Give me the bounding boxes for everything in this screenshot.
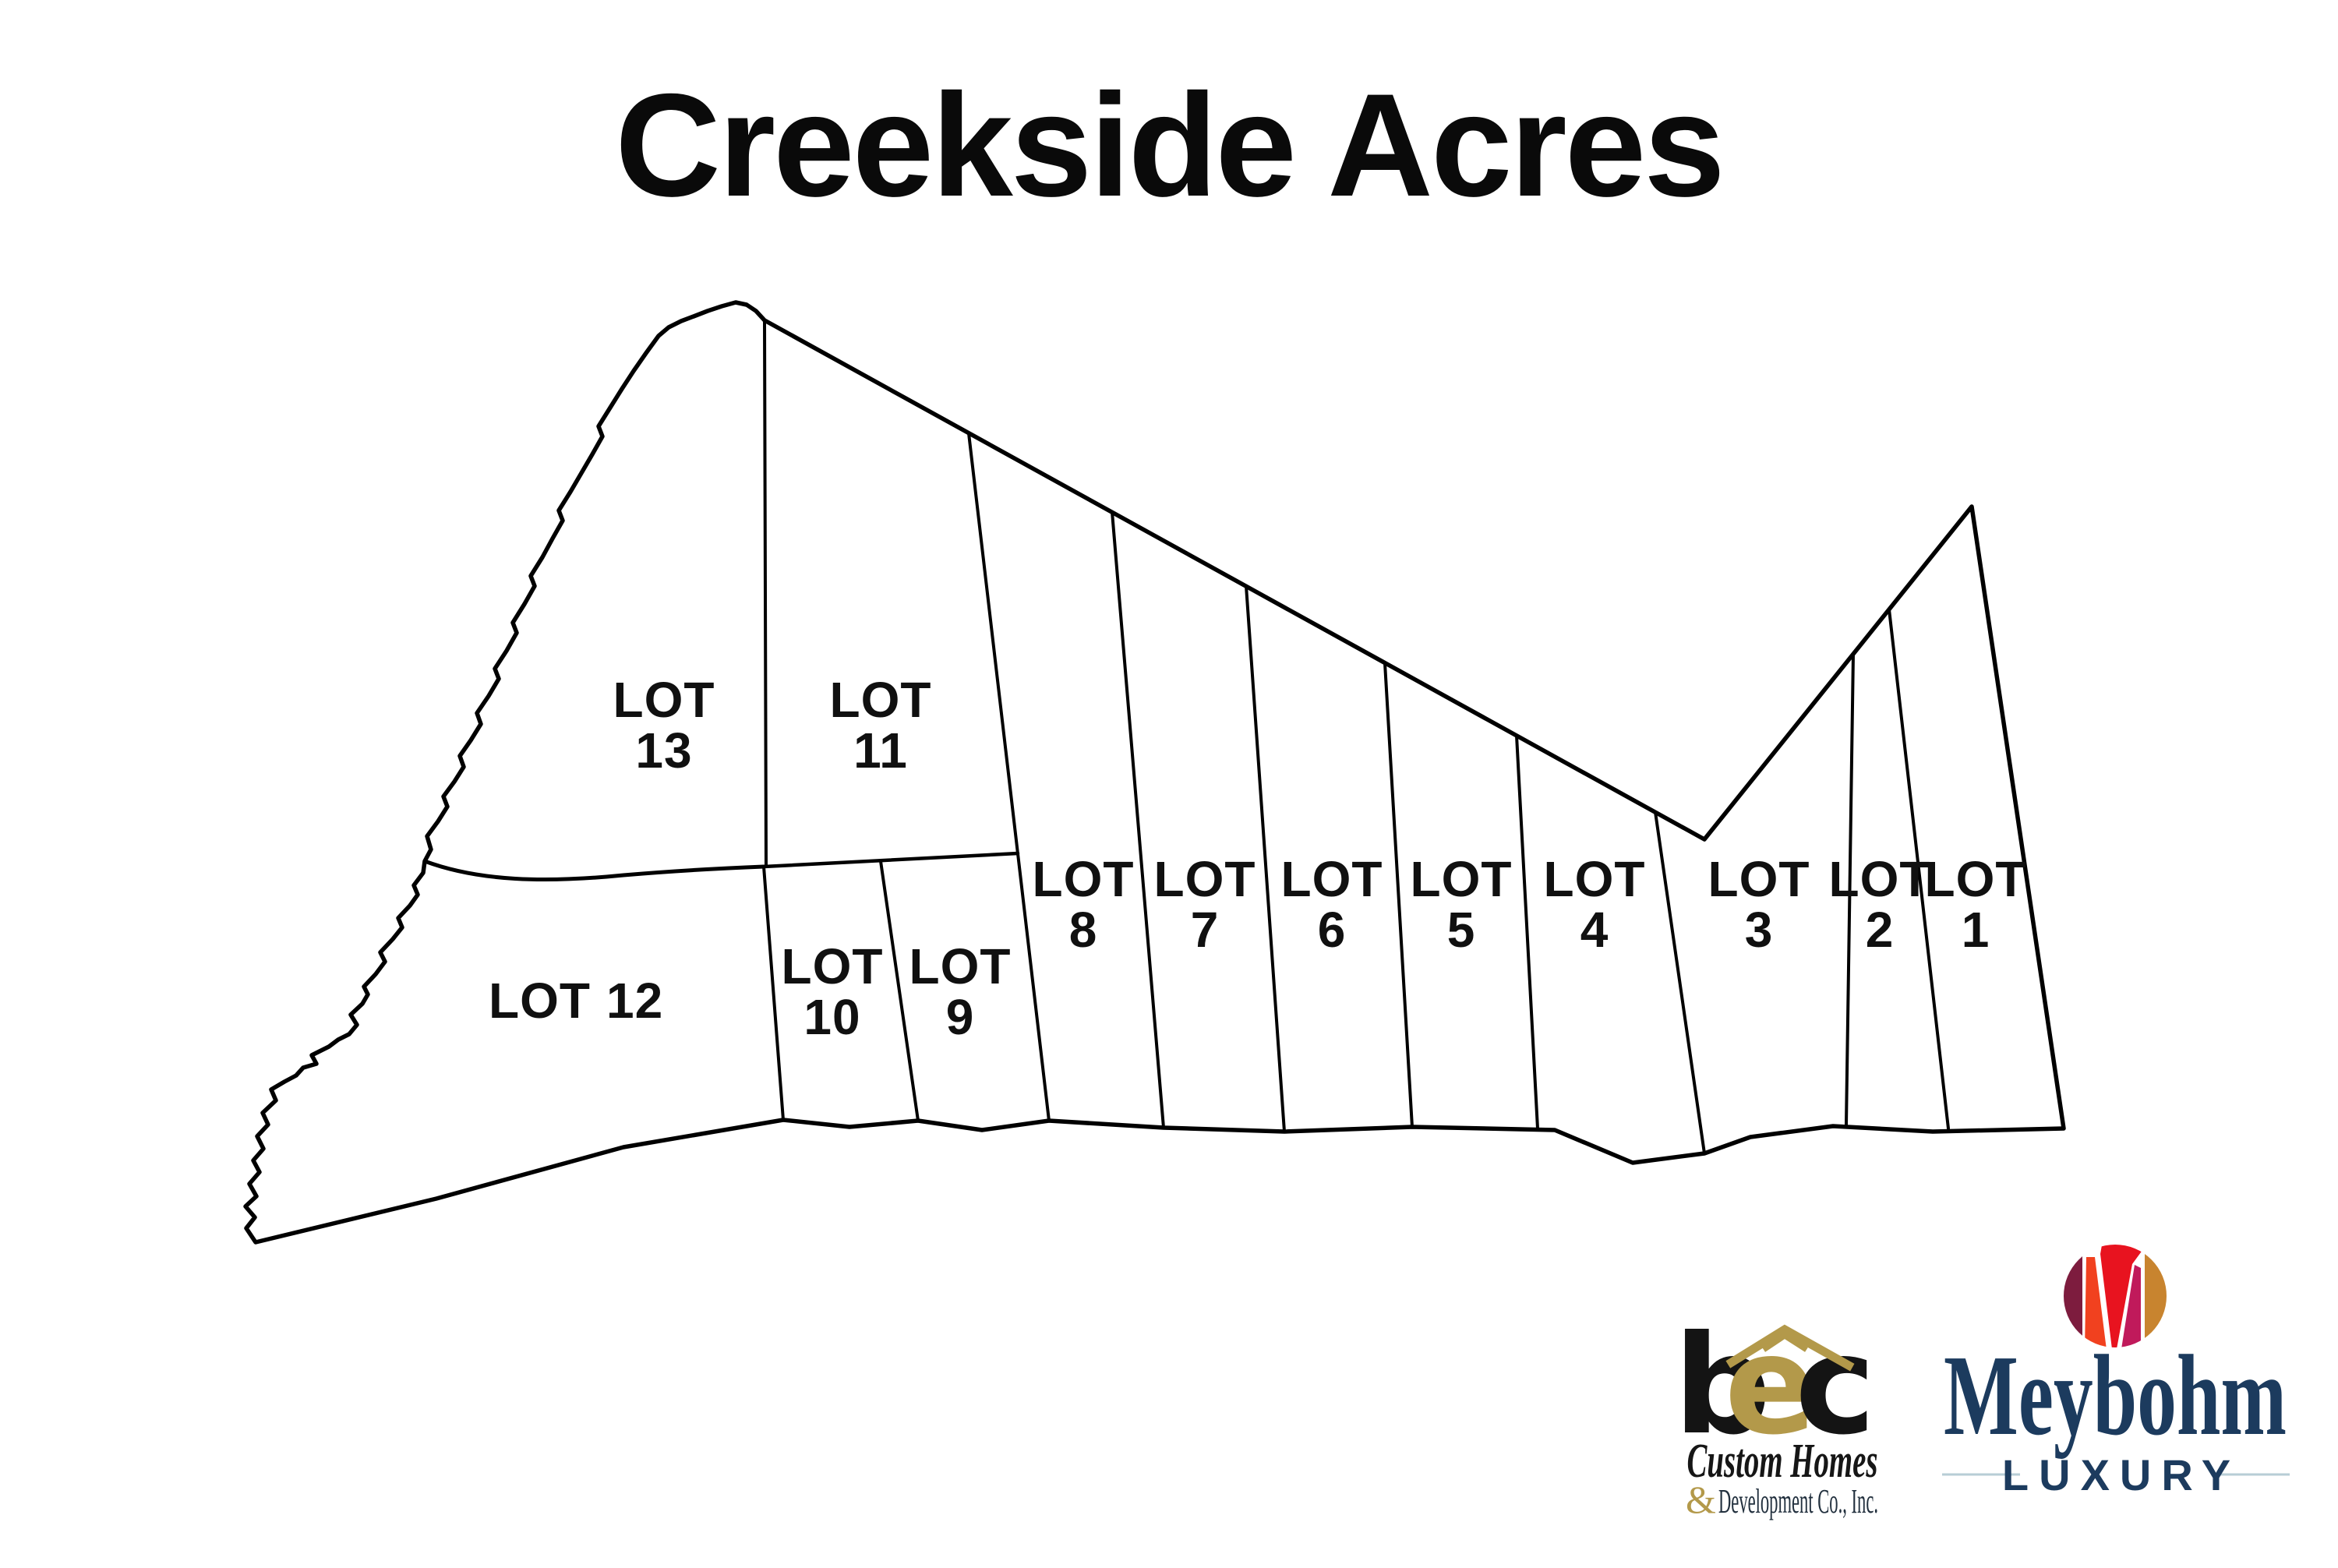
lot-5-num: 5	[1447, 902, 1476, 958]
lot-13-num: 13	[635, 722, 692, 779]
lot-label-13: LOT 13	[613, 672, 715, 779]
lot-10-word: LOT	[782, 938, 884, 994]
lot-4-word: LOT	[1544, 851, 1646, 907]
lot-4-num: 4	[1580, 902, 1609, 958]
lot-9-num: 9	[946, 989, 975, 1045]
lot-3-num: 3	[1745, 902, 1774, 958]
plat-map: LOT 13 LOT 11 LOT 12 LOT 10 LOT 9 LOT 8	[0, 0, 2338, 1568]
lot-2-word: LOT	[1829, 851, 1931, 907]
bec-ampersand: &	[1686, 1478, 1716, 1521]
lot-13-word: LOT	[613, 672, 715, 728]
lot-divider-11-8	[969, 433, 1049, 1121]
lot-label-3: LOT 3	[1708, 851, 1810, 958]
lot-label-1: LOT 1	[1925, 851, 2027, 958]
lot-label-10: LOT 10	[782, 938, 884, 1045]
lot-2-num: 2	[1866, 902, 1895, 958]
lot-label-7: LOT 7	[1154, 851, 1256, 958]
lot-8-word: LOT	[1033, 851, 1135, 907]
lot-divider-12-10	[764, 867, 783, 1120]
lot-12-num: 12	[606, 973, 663, 1029]
lot-label-9: LOT 9	[909, 938, 1012, 1045]
lot-5-word: LOT	[1411, 851, 1513, 907]
lot-6-num: 6	[1318, 902, 1347, 958]
lot-top-edge-10-9	[764, 853, 1018, 867]
bec-development-co: Development Co., Inc.	[1718, 1482, 1878, 1520]
lot-label-4: LOT 4	[1544, 851, 1646, 958]
meybohm-logo: Meybohm LUXURY	[1942, 1241, 2290, 1499]
lot-9-word: LOT	[909, 938, 1012, 994]
lot-divider-6-5	[1385, 663, 1412, 1127]
lot-1-word: LOT	[1925, 851, 2027, 907]
lot-11-num: 11	[853, 722, 908, 779]
lot-10-num: 10	[803, 989, 860, 1045]
lot-7-num: 7	[1191, 902, 1220, 958]
bec-logo: b e c Custom Homes & Development Co., In…	[1673, 1307, 1878, 1521]
lot-divider-4-3	[1655, 812, 1704, 1153]
lot-divider-13-11	[765, 320, 766, 867]
lot-label-2: LOT 2	[1829, 851, 1931, 958]
lot-11-word: LOT	[830, 672, 932, 728]
lot-divider-5-4	[1517, 736, 1538, 1128]
meybohm-wordmark: Meybohm	[1944, 1332, 2287, 1460]
lot-12-word: LOT	[489, 973, 591, 1029]
lot-8-num: 8	[1069, 902, 1098, 958]
lot-3-word: LOT	[1708, 851, 1810, 907]
lot-label-12: LOT 12	[489, 973, 663, 1029]
lot-label-11: LOT 11	[830, 672, 932, 779]
lot-7-word: LOT	[1154, 851, 1256, 907]
lot-1-num: 1	[1962, 902, 1990, 958]
lot-label-5: LOT 5	[1411, 851, 1513, 958]
lot-label-6: LOT 6	[1281, 851, 1383, 958]
lot-label-8: LOT 8	[1033, 851, 1135, 958]
parcel-outer-boundary	[245, 302, 2064, 1242]
lot-boundary-curve-12	[425, 861, 764, 880]
meybohm-luxury-label: LUXURY	[2002, 1450, 2241, 1499]
lot-6-word: LOT	[1281, 851, 1383, 907]
lot-divider-8-7	[1112, 512, 1164, 1128]
plat-map-page: Creekside Acres LOT 13	[0, 0, 2338, 1568]
